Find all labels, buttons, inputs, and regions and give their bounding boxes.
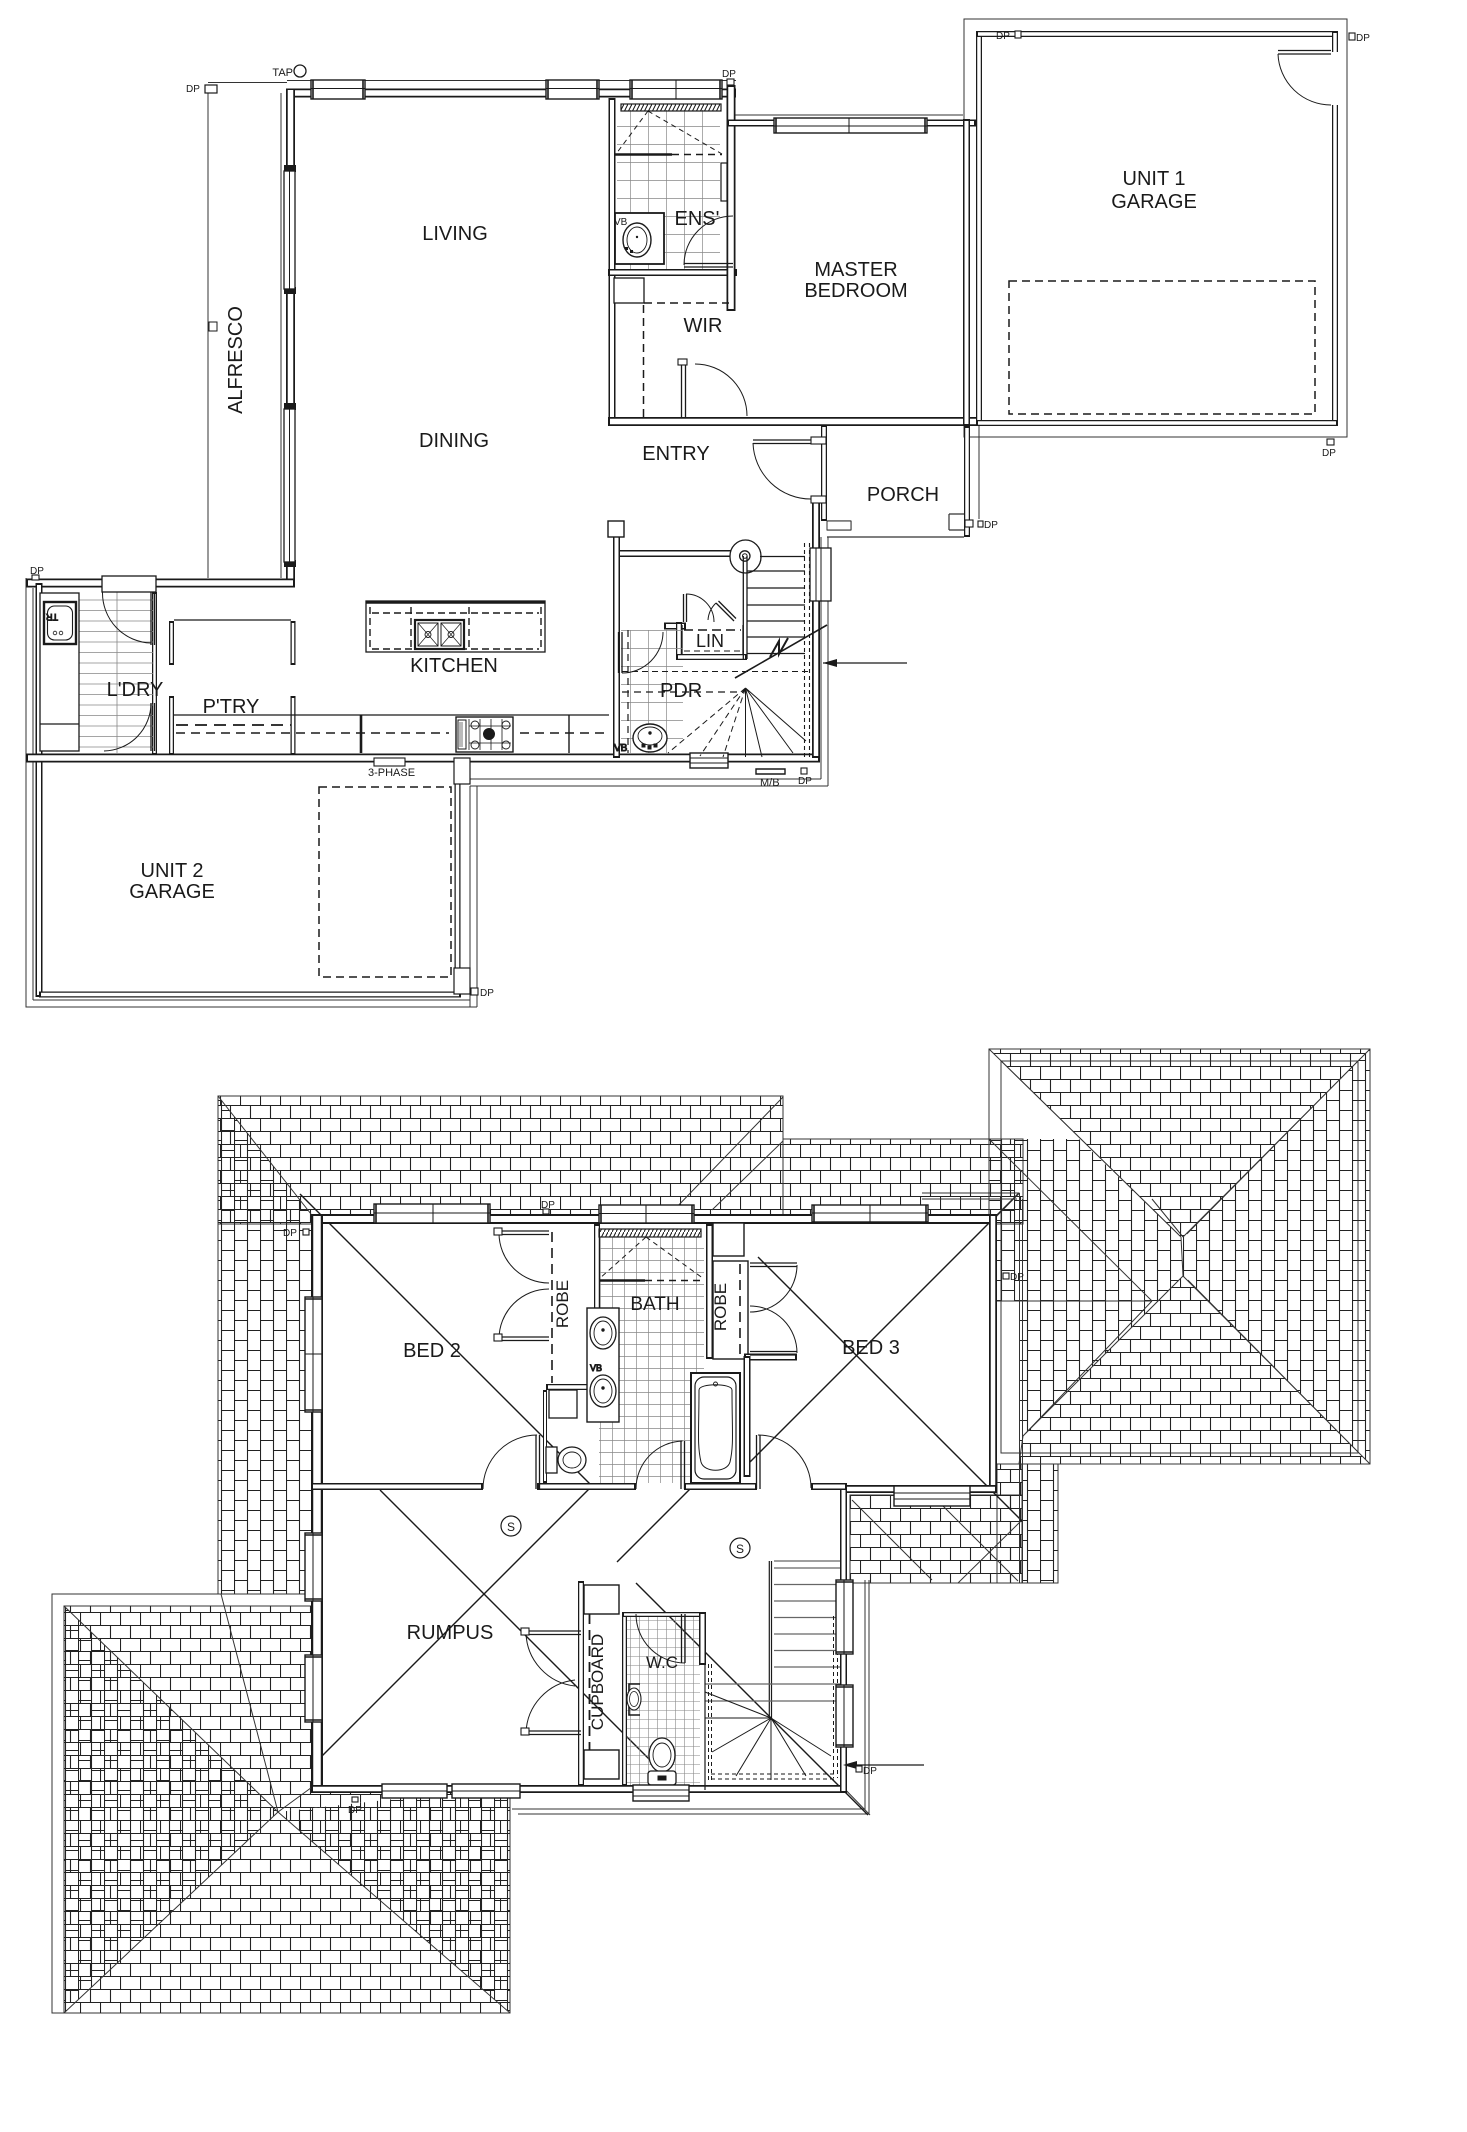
svg-text:UNIT 2: UNIT 2 <box>141 860 204 882</box>
svg-text:DP: DP <box>186 84 200 95</box>
svg-text:PDR: PDR <box>660 680 702 702</box>
svg-text:BED 3: BED 3 <box>842 1337 900 1359</box>
svg-text:BATH: BATH <box>630 1294 679 1315</box>
svg-text:ROBE: ROBE <box>553 1280 572 1328</box>
svg-text:S: S <box>507 1520 515 1534</box>
svg-text:VB: VB <box>614 743 628 754</box>
svg-text:TAP: TAP <box>272 67 293 79</box>
svg-text:P'TRY: P'TRY <box>203 696 260 718</box>
svg-text:BED 2: BED 2 <box>403 1340 461 1362</box>
svg-text:TR: TR <box>46 612 58 622</box>
svg-text:LIVING: LIVING <box>422 223 488 245</box>
svg-text:ENS': ENS' <box>675 208 720 230</box>
svg-text:L'DRY: L'DRY <box>107 679 164 701</box>
svg-text:UNIT 1: UNIT 1 <box>1123 168 1186 190</box>
svg-text:ENTRY: ENTRY <box>642 443 709 465</box>
svg-text:DP: DP <box>984 520 998 531</box>
svg-text:LIN: LIN <box>696 631 724 651</box>
svg-text:MASTER: MASTER <box>814 259 897 281</box>
svg-text:DP: DP <box>480 988 494 999</box>
svg-text:VB: VB <box>614 217 628 228</box>
svg-text:VB: VB <box>590 1363 602 1373</box>
svg-text:CUPBOARD: CUPBOARD <box>588 1634 607 1730</box>
svg-text:BEDROOM: BEDROOM <box>804 280 907 302</box>
svg-text:DP: DP <box>1322 448 1336 459</box>
svg-text:DP: DP <box>863 1766 877 1777</box>
svg-text:GARAGE: GARAGE <box>129 881 215 903</box>
svg-text:DP: DP <box>283 1228 297 1239</box>
svg-text:WIR: WIR <box>684 315 723 337</box>
svg-text:GARAGE: GARAGE <box>1111 191 1197 213</box>
svg-text:KITCHEN: KITCHEN <box>410 655 498 677</box>
svg-text:S: S <box>736 1542 744 1556</box>
svg-text:ALFRESCO: ALFRESCO <box>225 306 247 414</box>
svg-text:3-PHASE: 3-PHASE <box>368 767 415 779</box>
svg-text:DP: DP <box>348 1805 362 1816</box>
svg-text:DP: DP <box>996 31 1010 42</box>
svg-text:DP: DP <box>1356 33 1370 44</box>
svg-text:ROBE: ROBE <box>711 1283 730 1331</box>
svg-text:DINING: DINING <box>419 430 489 452</box>
svg-text:DP: DP <box>798 776 812 787</box>
svg-text:W.C: W.C <box>646 1653 678 1672</box>
svg-text:M/B: M/B <box>760 777 780 789</box>
svg-text:DP: DP <box>1010 1272 1024 1283</box>
svg-text:PORCH: PORCH <box>867 484 939 506</box>
svg-text:RUMPUS: RUMPUS <box>407 1622 494 1644</box>
svg-text:DP: DP <box>722 69 736 80</box>
